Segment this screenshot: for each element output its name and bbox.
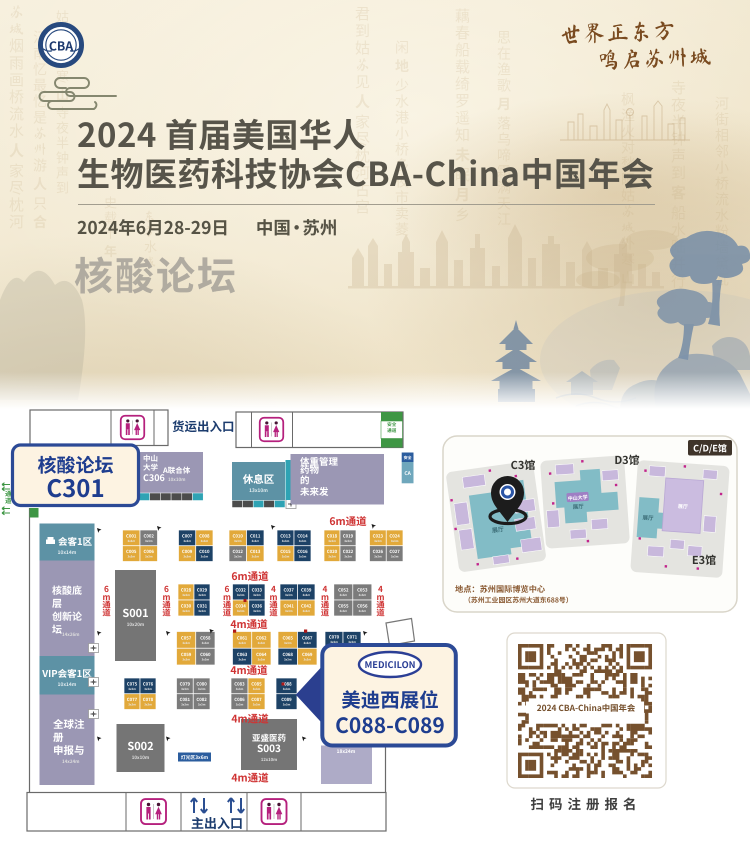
svg-text:3x3m: 3x3m [198,609,206,613]
svg-text:3x3m: 3x3m [182,609,190,613]
svg-text:申报与: 申报与 [53,743,85,758]
svg-text:C/D/E馆: C/D/E馆 [693,442,727,455]
svg-text:3x3m: 3x3m [285,593,293,597]
svg-text:3x3m: 3x3m [258,641,266,645]
svg-text:4m通道: 4m通道 [231,712,269,727]
svg-text:C088-C089: C088-C089 [335,710,445,740]
svg-text:3x3m: 3x3m [253,687,261,691]
svg-text:3x3m: 3x3m [234,555,242,559]
svg-text:3x3m: 3x3m [238,641,246,645]
svg-text:3x3m: 3x3m [181,687,189,691]
svg-text:E3馆: E3馆 [692,552,716,568]
svg-text:未来发: 未来发 [300,484,329,498]
svg-text:3x3m: 3x3m [283,687,291,691]
svg-text:6m通道: 6m通道 [102,583,111,618]
svg-text:3x3m: 3x3m [182,593,190,597]
svg-text:灯光区3x6m: 灯光区3x6m [181,754,209,761]
svg-text:13x10m: 13x10m [249,487,268,494]
svg-text:（苏州工业园区苏州大道东688号）: （苏州工业园区苏州大道东688号） [464,595,573,605]
svg-text:3x3m: 3x3m [283,703,291,707]
svg-text:6m通道: 6m通道 [329,514,367,529]
svg-text:3x3m: 3x3m [328,555,336,559]
svg-text:3x3m: 3x3m [236,703,244,707]
svg-text:3x3m: 3x3m [258,658,266,662]
svg-text:D3馆: D3馆 [614,452,639,468]
svg-text:3x3m: 3x3m [299,555,307,559]
svg-text:展厅: 展厅 [491,524,504,535]
svg-text:C301: C301 [46,469,104,504]
svg-text:3x3m: 3x3m [391,539,399,543]
svg-text:A联合体: A联合体 [162,465,191,476]
svg-text:3x3m: 3x3m [201,555,209,559]
svg-text:MEDICILON: MEDICILON [364,657,415,671]
svg-text:18x24m: 18x24m [337,748,356,755]
svg-text:3x3m: 3x3m [340,593,348,597]
svg-text:3x3m: 3x3m [374,555,382,559]
svg-text:3x3m: 3x3m [182,658,190,662]
svg-text:3x3m: 3x3m [182,641,190,645]
svg-text:3x3m: 3x3m [145,539,153,543]
svg-text:3x3m: 3x3m [127,539,135,543]
svg-text:3x3m: 3x3m [282,555,290,559]
svg-text:3x3m: 3x3m [251,539,259,543]
svg-text:3x3m: 3x3m [201,539,209,543]
svg-text:展厅: 展厅 [678,503,688,511]
svg-text:S003: S003 [257,740,281,755]
svg-text:3x3m: 3x3m [340,609,348,613]
svg-text:3x3m: 3x3m [359,593,367,597]
svg-text:6m通道: 6m通道 [162,583,171,618]
svg-text:4m通道: 4m通道 [321,583,330,618]
svg-text:12x10m: 12x10m [261,757,277,763]
svg-text:3x3m: 3x3m [328,539,336,543]
svg-text:3x3m: 3x3m [299,539,307,543]
svg-text:3x3m: 3x3m [198,703,206,707]
svg-text:货运出入口: 货运出入口 [172,416,235,435]
svg-text:10x14m: 10x14m [58,549,77,556]
svg-text:3x3m: 3x3m [359,609,367,613]
svg-text:展厅: 展厅 [642,513,654,522]
svg-text:3x3m: 3x3m [234,539,242,543]
svg-text:4m通道: 4m通道 [231,771,269,786]
svg-text:3x3m: 3x3m [374,539,382,543]
svg-text:3x3m: 3x3m [144,687,152,691]
svg-text:3x3m: 3x3m [236,687,244,691]
svg-text:3x3m: 3x3m [238,658,246,662]
svg-text:安全: 安全 [404,455,412,461]
svg-text:3x3m: 3x3m [253,609,261,613]
svg-text:4m通道: 4m通道 [230,663,268,678]
svg-text:3x3m: 3x3m [128,687,136,691]
svg-text:10x14m: 10x14m [58,681,77,688]
svg-text:6m通道: 6m通道 [231,569,269,584]
svg-text:3x3m: 3x3m [303,658,311,662]
svg-text:3x3m: 3x3m [344,555,352,559]
svg-text:3x3m: 3x3m [302,609,310,613]
svg-text:3x3m: 3x3m [198,593,206,597]
svg-text:3x3m: 3x3m [251,555,259,559]
svg-text:主出入口: 主出入口 [191,813,243,832]
svg-text:3x3m: 3x3m [391,555,399,559]
svg-text:3x3m: 3x3m [202,658,210,662]
svg-text:3x3m: 3x3m [202,641,210,645]
svg-text:3x3m: 3x3m [344,539,352,543]
svg-text:展厅: 展厅 [573,502,585,511]
svg-text:3x3m: 3x3m [237,609,245,613]
svg-text:4m通道: 4m通道 [376,583,385,618]
svg-text:S001: S001 [122,605,148,621]
svg-text:10x10m: 10x10m [168,477,186,483]
svg-text:10x10m: 10x10m [132,755,150,761]
svg-text:3x3m: 3x3m [302,593,310,597]
svg-text:3x3m: 3x3m [145,555,153,559]
svg-text:3x3m: 3x3m [181,703,189,707]
svg-text:3x3m: 3x3m [144,703,152,707]
svg-text:休息区: 休息区 [243,472,275,487]
svg-text:地点：苏州国际博览中心: 地点：苏州国际博览中心 [455,583,546,595]
svg-text:3x3m: 3x3m [253,593,261,597]
svg-text:VIP会客1区: VIP会客1区 [41,666,92,680]
svg-text:坛: 坛 [52,621,62,636]
svg-text:3x3m: 3x3m [127,555,135,559]
svg-text:3x3m: 3x3m [183,555,191,559]
svg-text:3x3m: 3x3m [128,703,136,707]
svg-text:中山大学: 中山大学 [567,494,587,502]
svg-text:14x24m: 14x24m [62,759,80,765]
svg-text:美迪西展位: 美迪西展位 [341,684,439,713]
svg-text:14x26m: 14x26m [62,632,80,638]
svg-text:S002: S002 [127,738,153,754]
svg-text:3x3m: 3x3m [285,609,293,613]
svg-text:3x3m: 3x3m [284,658,292,662]
svg-text:通道: 通道 [387,428,397,434]
svg-text:3x3m: 3x3m [303,641,311,645]
svg-text:3x3m: 3x3m [237,593,245,597]
svg-text:3x3m: 3x3m [183,539,191,543]
svg-text:CA: CA [404,470,411,477]
svg-text:C306: C306 [143,471,165,484]
svg-text:C3馆: C3馆 [511,457,536,473]
svg-text:6m通道: 6m通道 [223,583,232,618]
svg-text:扫码注册报名: 扫码注册报名 [531,793,642,813]
svg-text:3x3m: 3x3m [282,539,290,543]
svg-text:2024 CBA-China中国年会: 2024 CBA-China中国年会 [537,702,636,714]
svg-text:10x20m: 10x20m [127,622,145,628]
svg-text:3x3m: 3x3m [198,687,206,691]
svg-text:4m通道: 4m通道 [269,583,278,618]
svg-text:3x3m: 3x3m [284,641,292,645]
svg-text:会客1区: 会客1区 [58,534,93,548]
svg-text:3x3m: 3x3m [253,703,261,707]
